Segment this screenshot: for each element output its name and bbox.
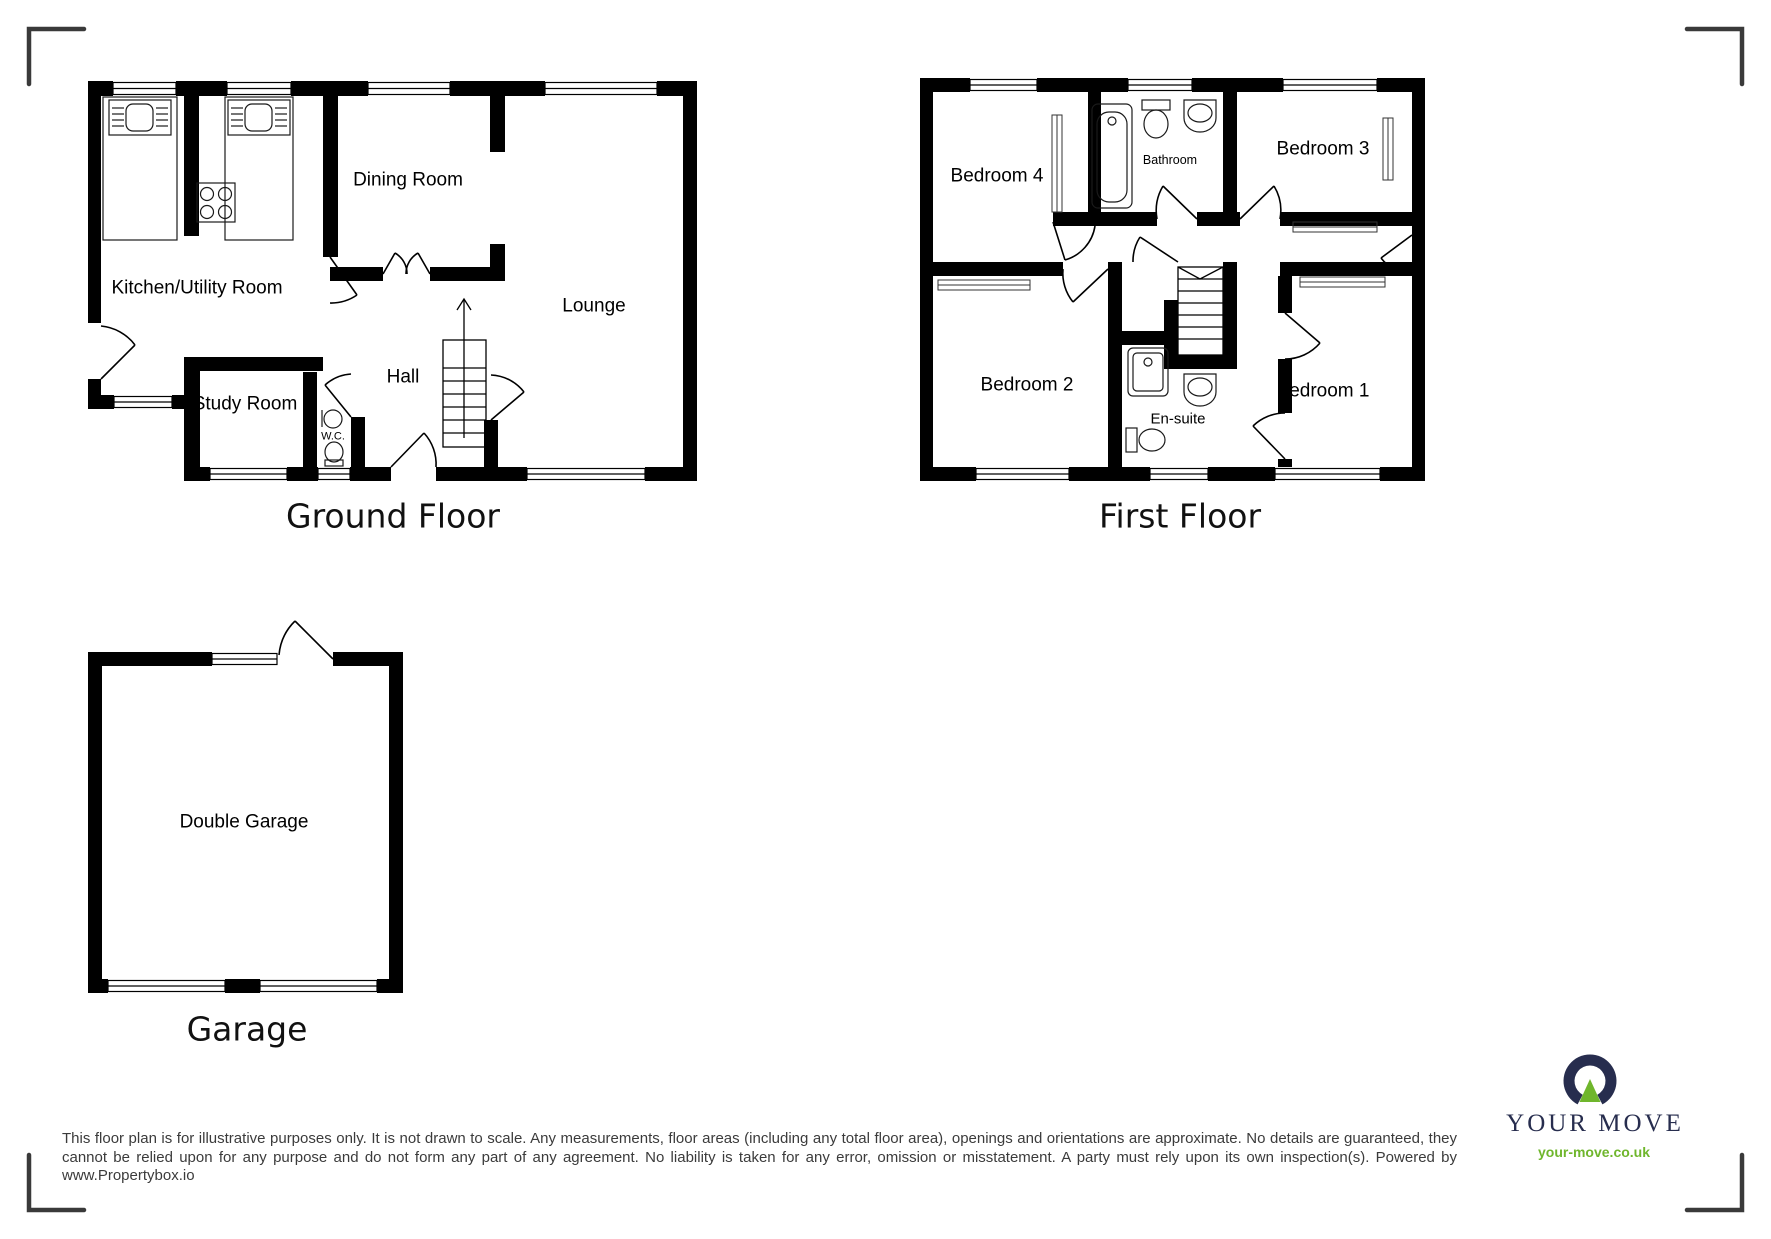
labels-layer: Kitchen/Utility Room Dining Room Lounge … [0,0,1771,1239]
brand-name: YOUR MOVE [1506,1110,1684,1138]
room-label-bed1: Bedroom 1 [1277,382,1370,401]
first-floor-title: First Floor [1099,497,1261,536]
room-label-ensuite: En-suite [1150,412,1205,427]
ground-floor-title: Ground Floor [286,497,500,536]
room-label-bed4: Bedroom 4 [951,167,1044,186]
room-label-bathroom: Bathroom [1143,154,1197,167]
brand-website: your-move.co.uk [1538,1144,1650,1160]
room-label-wc: W.C. [321,432,345,443]
room-label-hall: Hall [387,368,420,387]
room-label-study: Study Room [193,395,298,414]
disclaimer-text: This floor plan is for illustrative purp… [62,1130,1457,1186]
floorplan-page: { "floors": { "ground": { "title": "Grou… [0,0,1771,1239]
room-label-lounge: Lounge [562,297,625,316]
room-label-bed2: Bedroom 2 [981,376,1074,395]
room-label-bed3: Bedroom 3 [1277,140,1370,159]
room-label-dining: Dining Room [353,171,463,190]
room-label-kitchen: Kitchen/Utility Room [111,279,282,298]
room-label-double-garage: Double Garage [180,813,309,832]
garage-title: Garage [187,1010,308,1049]
